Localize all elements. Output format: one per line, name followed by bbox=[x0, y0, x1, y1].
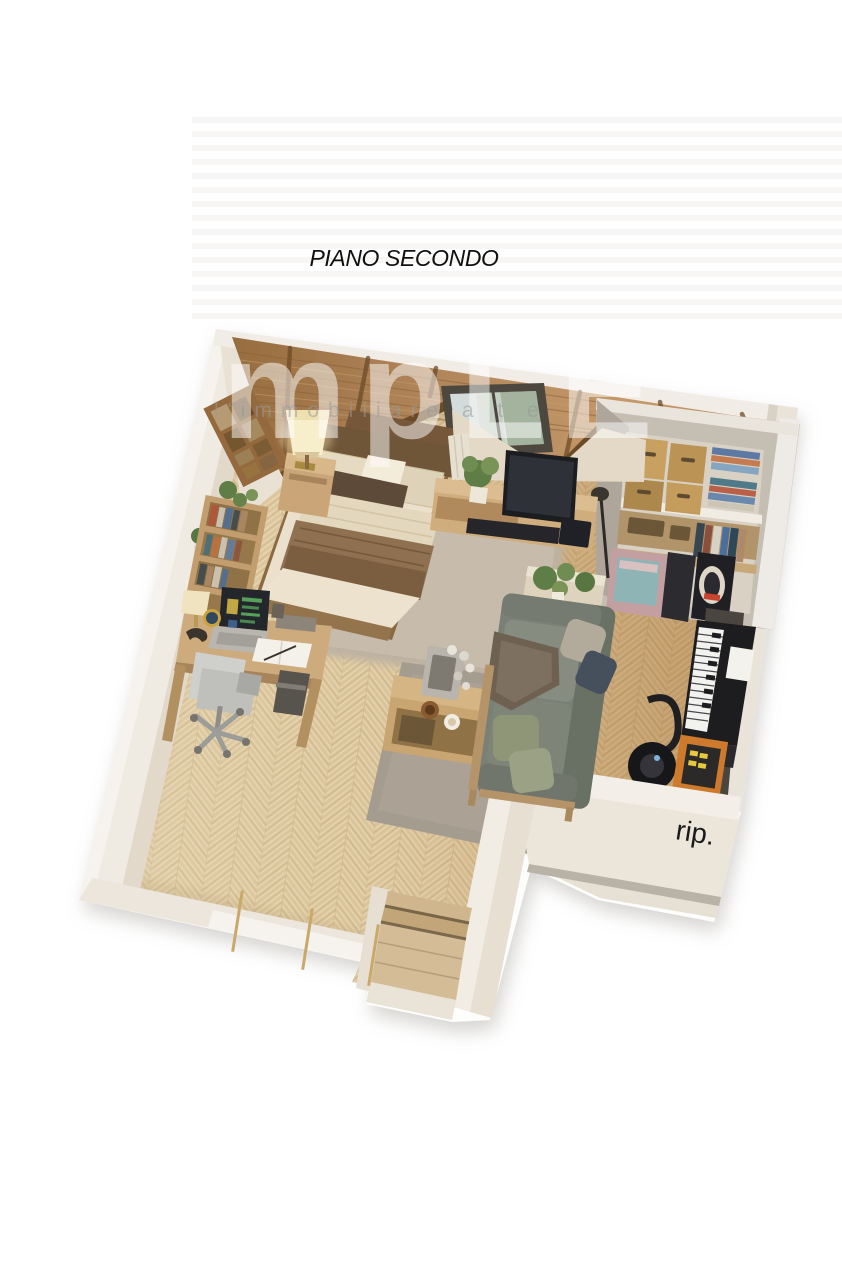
svg-text:PIANO SECONDO: PIANO SECONDO bbox=[309, 245, 499, 271]
svg-text:l'immobiliare a t e: l'immobiliare a t e bbox=[214, 399, 548, 422]
svg-text:mpLE: mpLE bbox=[222, 311, 667, 468]
svg-text:rip.: rip. bbox=[674, 814, 717, 851]
